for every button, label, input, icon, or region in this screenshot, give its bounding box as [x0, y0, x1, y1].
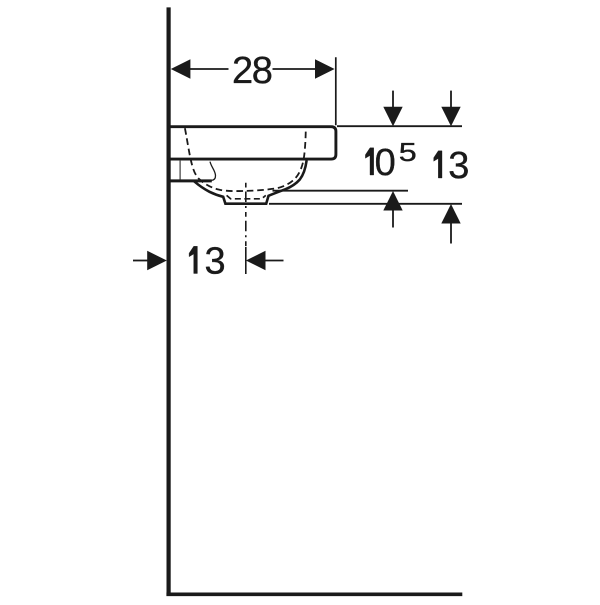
svg-text:2: 2 — [232, 50, 253, 92]
svg-text:8: 8 — [252, 50, 273, 92]
svg-text:5: 5 — [399, 137, 417, 167]
svg-text:0: 0 — [375, 142, 396, 184]
svg-text:3: 3 — [448, 145, 469, 187]
svg-text:3: 3 — [205, 241, 226, 283]
